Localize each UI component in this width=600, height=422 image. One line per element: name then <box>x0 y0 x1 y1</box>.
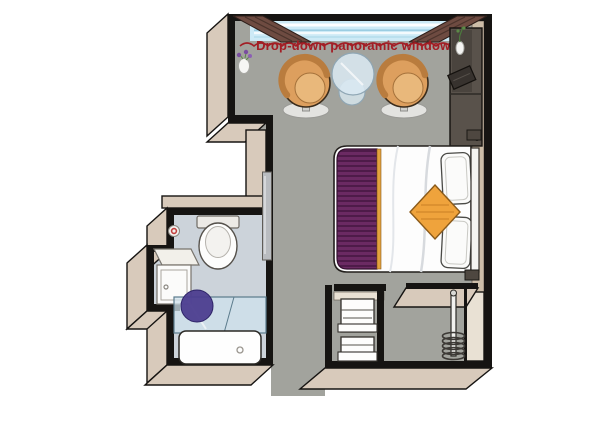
window-label: Drop-down panoramic windows <box>256 38 458 53</box>
wall-closet-left <box>325 285 332 368</box>
wall-face-top-left <box>207 14 228 136</box>
wall-face-bottom-right <box>300 368 492 389</box>
wall-left-upper <box>228 14 235 118</box>
wall-bottom <box>325 361 492 368</box>
headboard <box>471 148 479 272</box>
wall-bath-top <box>167 208 273 215</box>
wall-nook-left <box>147 245 154 311</box>
armchair-right <box>380 57 428 118</box>
bath-stool <box>181 290 213 322</box>
cabin-floor-plan: Drop-down panoramic windows <box>0 0 600 422</box>
bed-runner <box>337 149 377 269</box>
wall-closet-top-b <box>406 283 478 289</box>
shelf-unit-lower <box>338 337 377 361</box>
wall-closet-divider <box>377 291 384 361</box>
wall-right <box>484 14 492 368</box>
rod-pole <box>451 292 456 356</box>
toilet-seat <box>206 227 231 258</box>
vanity-counter <box>154 249 199 265</box>
mirror-door <box>263 172 272 260</box>
shower-base <box>179 331 261 364</box>
runner-gold-edge <box>377 149 381 269</box>
armchair-left <box>282 57 330 118</box>
rod-mount <box>451 290 457 296</box>
window-streak-1 <box>254 24 460 27</box>
flower-blossom-3 <box>248 54 252 58</box>
desk-unit <box>448 26 482 146</box>
flower-blossom-2 <box>244 50 248 54</box>
reading-lamp-top <box>467 130 481 140</box>
double-bed <box>334 130 481 280</box>
shelf-unit-upper <box>338 299 377 332</box>
wall-bath-left-lower <box>167 304 174 365</box>
floor-plan-svg: Drop-down panoramic windows <box>0 0 600 422</box>
wall-closet-top-a <box>334 284 386 291</box>
armchair-left-seat <box>295 73 325 103</box>
shelf-lower-flange <box>338 352 377 361</box>
wall-face-bath-top <box>162 196 266 208</box>
vase-leaf-1 <box>456 29 459 32</box>
wall-face-bath-bottom <box>145 365 273 385</box>
shelf-upper-flange <box>338 324 377 332</box>
vase-leaf-2 <box>462 26 465 29</box>
toilet-paper-holder <box>169 226 180 237</box>
armchair-right-seat <box>393 73 423 103</box>
bud-vase <box>456 42 464 55</box>
reading-lamp-bottom <box>465 270 479 280</box>
flower-blossom-1 <box>237 53 241 57</box>
flower-vase <box>239 59 250 74</box>
panoramic-window: Drop-down panoramic windows <box>233 16 487 53</box>
